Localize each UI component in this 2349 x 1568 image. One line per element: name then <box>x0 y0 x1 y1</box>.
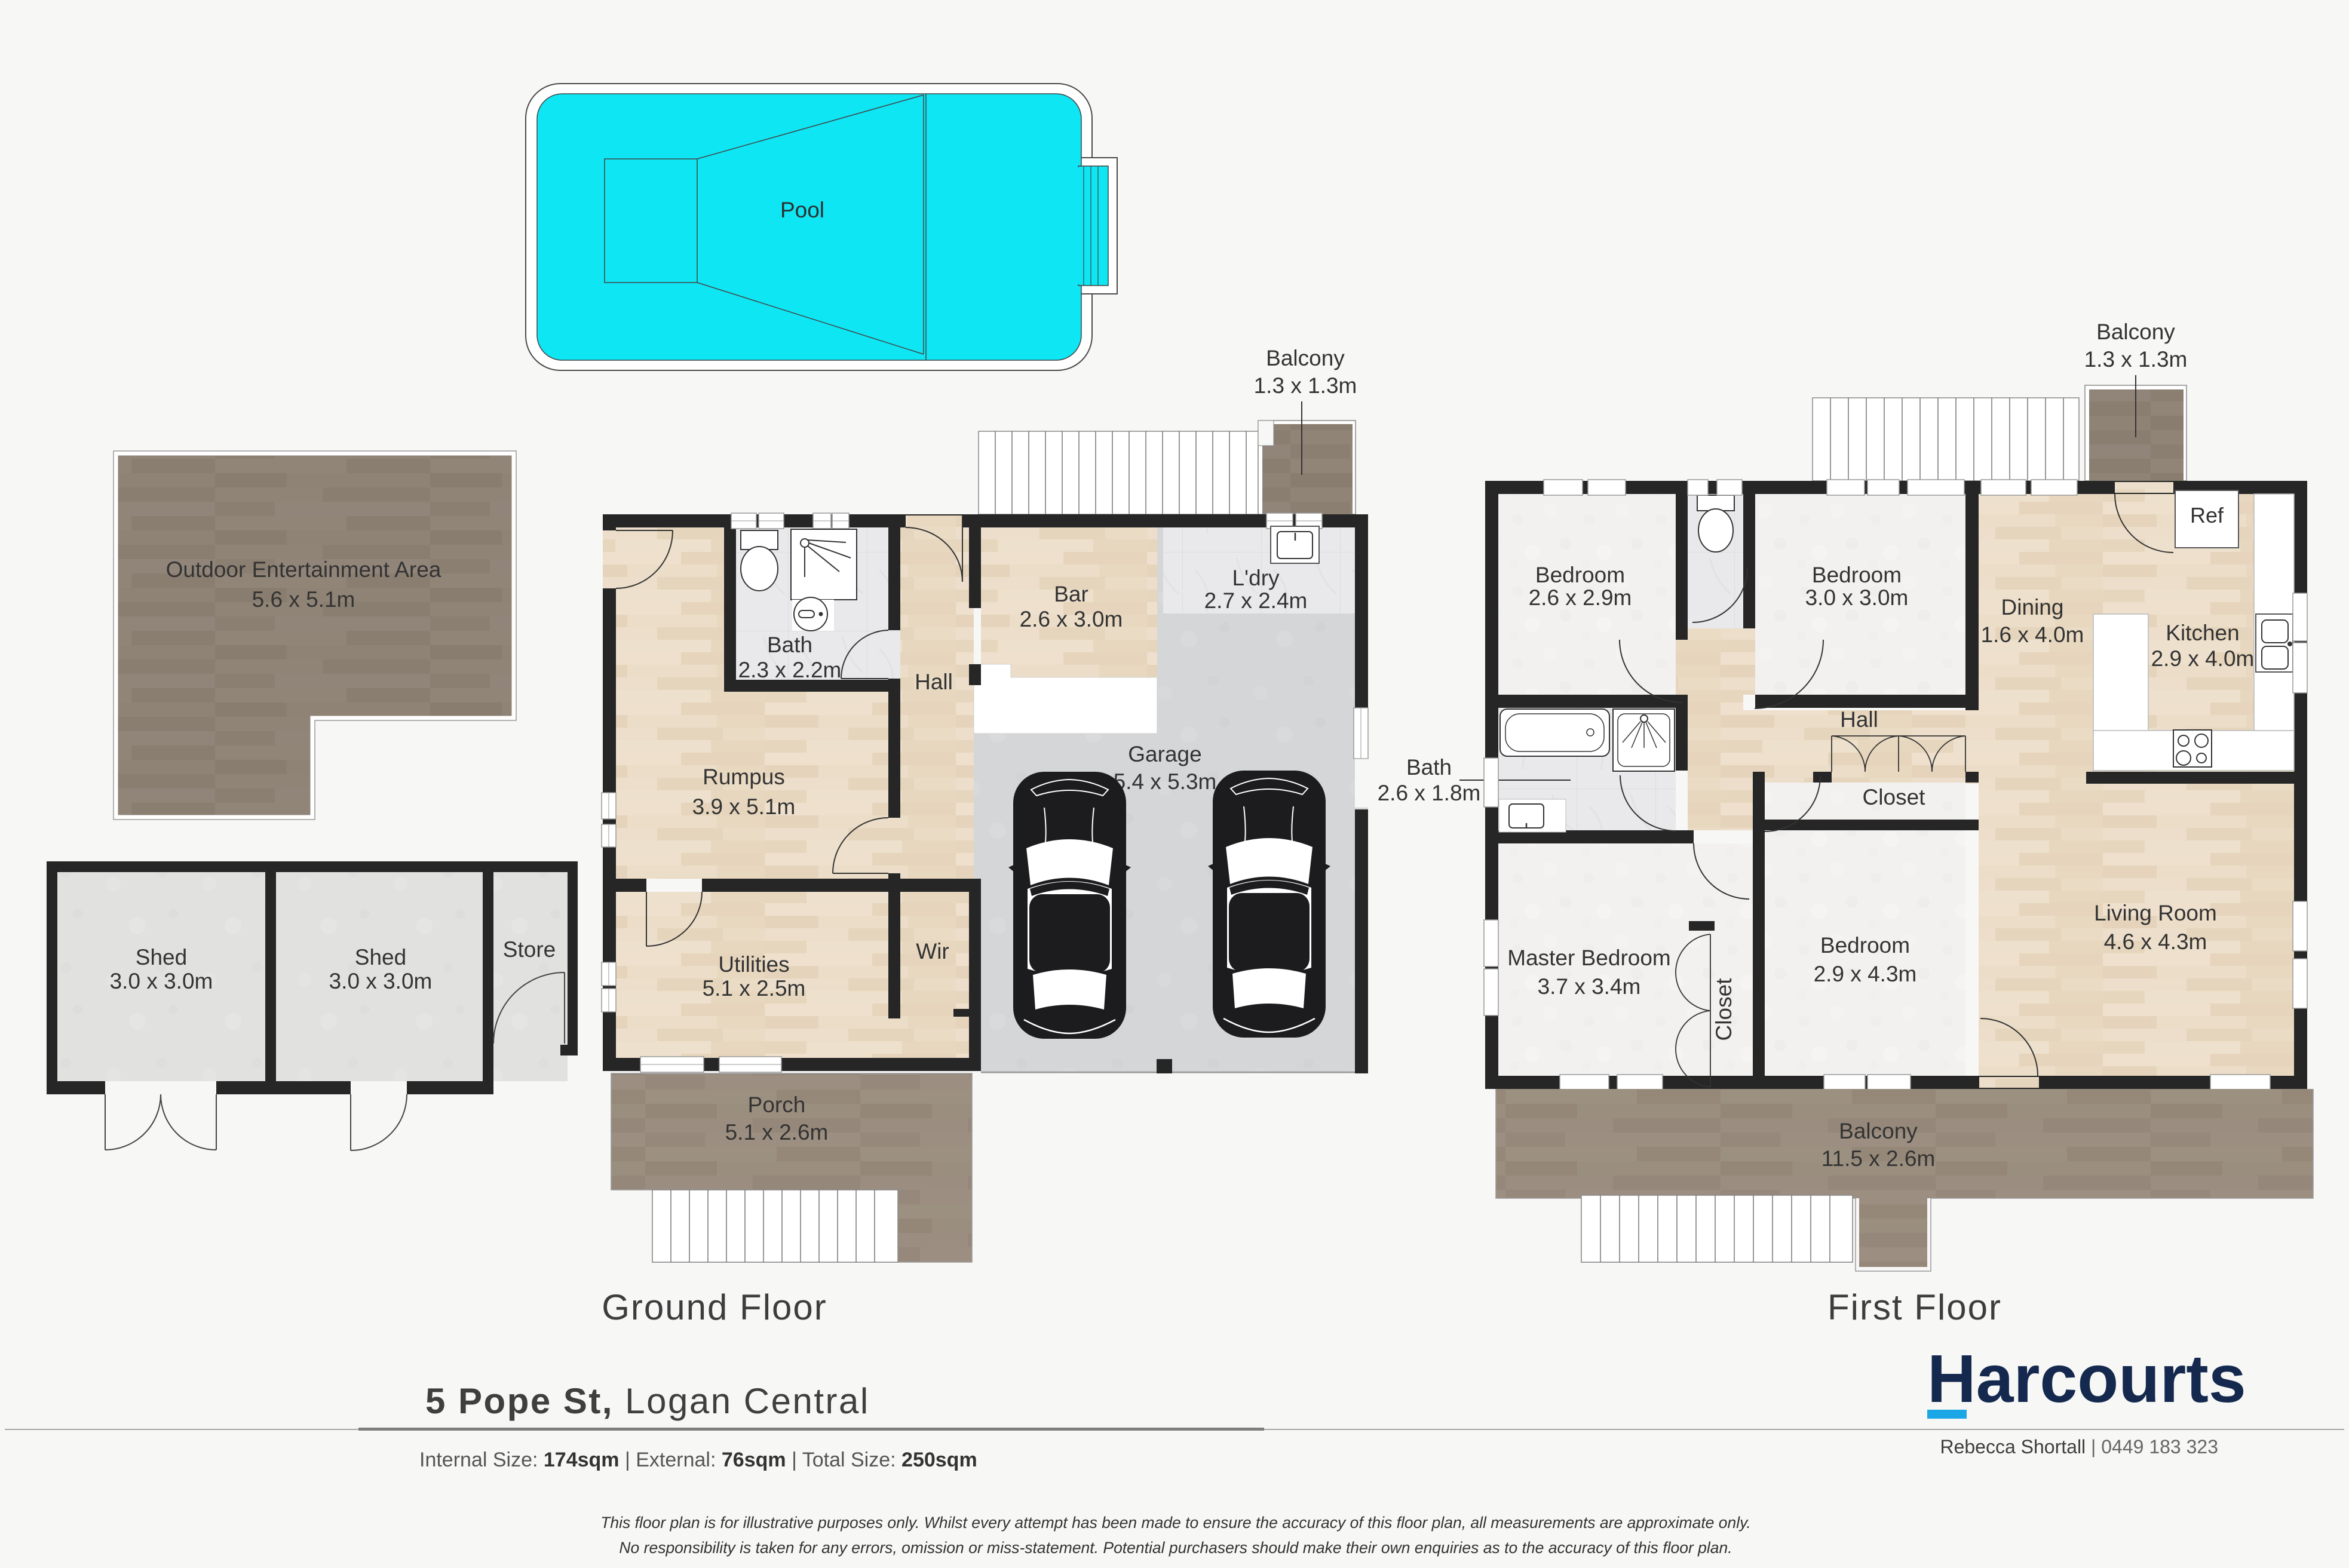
svg-text:Bar: Bar <box>1054 582 1088 606</box>
svg-text:3.0 x 3.0m: 3.0 x 3.0m <box>1805 585 1909 610</box>
svg-text:Closet: Closet <box>1863 785 1926 809</box>
svg-text:Balcony: Balcony <box>1839 1119 1918 1143</box>
svg-text:1.6 x 4.0m: 1.6 x 4.0m <box>1981 622 2084 647</box>
svg-text:2.6 x 3.0m: 2.6 x 3.0m <box>1020 607 1123 631</box>
svg-text:L'dry: L'dry <box>1232 566 1280 590</box>
svg-text:No responsibility is taken for: No responsibility is taken for any error… <box>619 1539 1732 1557</box>
svg-text:3.0 x 3.0m: 3.0 x 3.0m <box>329 969 433 993</box>
svg-text:Porch: Porch <box>748 1093 806 1117</box>
svg-text:Dining: Dining <box>2001 595 2064 619</box>
svg-text:2.9 x 4.0m: 2.9 x 4.0m <box>2151 646 2255 671</box>
svg-text:2.3 x 2.2m: 2.3 x 2.2m <box>738 658 842 682</box>
svg-text:Harcourts: Harcourts <box>1927 1341 2246 1416</box>
svg-text:Pool: Pool <box>780 198 824 222</box>
svg-text:Living Room: Living Room <box>2094 901 2217 925</box>
svg-text:Ground Floor: Ground Floor <box>602 1287 827 1327</box>
svg-text:Ref: Ref <box>2190 503 2224 527</box>
svg-text:1.3 x 1.3m: 1.3 x 1.3m <box>2084 347 2188 372</box>
svg-text:2.9 x 4.3m: 2.9 x 4.3m <box>1814 962 1917 986</box>
svg-text:Utilities: Utilities <box>718 952 789 977</box>
svg-text:Kitchen: Kitchen <box>2166 621 2239 645</box>
svg-text:5.1 x 2.6m: 5.1 x 2.6m <box>725 1120 829 1144</box>
svg-text:Bath: Bath <box>1406 755 1452 780</box>
svg-text:Rumpus: Rumpus <box>703 765 785 789</box>
svg-text:3.7 x 3.4m: 3.7 x 3.4m <box>1538 974 1641 999</box>
svg-text:Bedroom: Bedroom <box>1820 933 1910 958</box>
svg-text:3.9 x 5.1m: 3.9 x 5.1m <box>692 794 796 819</box>
svg-text:First Floor: First Floor <box>1827 1287 2002 1327</box>
svg-text:Store: Store <box>503 937 556 962</box>
svg-text:5.6 x 5.1m: 5.6 x 5.1m <box>252 587 355 612</box>
svg-text:Balcony: Balcony <box>2096 320 2175 344</box>
svg-text:Shed: Shed <box>136 945 187 969</box>
svg-text:4.6 x 4.3m: 4.6 x 4.3m <box>2104 929 2207 954</box>
svg-text:Rebecca Shortall | 0449 183 32: Rebecca Shortall | 0449 183 323 <box>1940 1436 2218 1457</box>
svg-text:Internal Size: 174sqm | Extern: Internal Size: 174sqm | External: 76sqm … <box>419 1449 977 1471</box>
svg-text:Outdoor Entertainment Area: Outdoor Entertainment Area <box>166 557 441 582</box>
svg-text:5 Pope St, Logan Central: 5 Pope St, Logan Central <box>425 1381 870 1421</box>
svg-text:2.6 x 1.8m: 2.6 x 1.8m <box>1378 781 1481 805</box>
svg-text:Hall: Hall <box>915 670 953 694</box>
svg-text:Hall: Hall <box>1840 707 1878 732</box>
svg-text:Closet: Closet <box>1712 978 1736 1041</box>
svg-text:Wir: Wir <box>916 939 949 963</box>
svg-text:Shed: Shed <box>355 945 406 969</box>
svg-text:Bedroom: Bedroom <box>1535 563 1625 587</box>
svg-text:5.1 x 2.5m: 5.1 x 2.5m <box>703 976 806 1001</box>
svg-text:2.7 x 2.4m: 2.7 x 2.4m <box>1204 588 1308 613</box>
svg-text:Garage: Garage <box>1128 742 1201 766</box>
svg-text:Balcony: Balcony <box>1266 346 1345 370</box>
svg-text:Bath: Bath <box>767 633 812 657</box>
svg-text:2.6 x 2.9m: 2.6 x 2.9m <box>1529 585 1632 610</box>
svg-text:11.5 x 2.6m: 11.5 x 2.6m <box>1821 1146 1936 1171</box>
svg-text:Master Bedroom: Master Bedroom <box>1507 946 1671 970</box>
svg-text:3.0 x 3.0m: 3.0 x 3.0m <box>110 969 213 993</box>
svg-text:1.3 x 1.3m: 1.3 x 1.3m <box>1254 373 1357 398</box>
svg-text:Bedroom: Bedroom <box>1812 563 1902 587</box>
svg-text:5.4 x 5.3m: 5.4 x 5.3m <box>1114 769 1217 794</box>
svg-text:This floor plan is for illustr: This floor plan is for illustrative purp… <box>600 1514 1751 1532</box>
